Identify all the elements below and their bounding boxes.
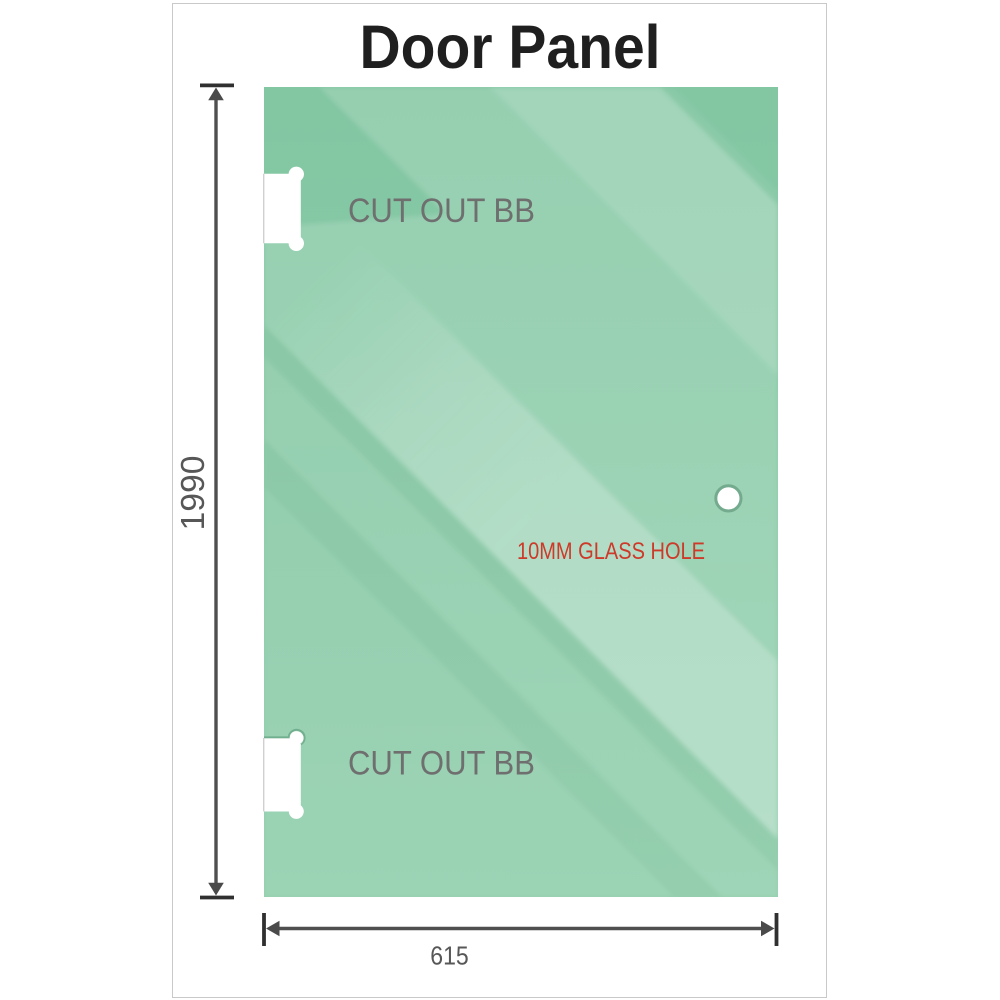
svg-text:615: 615 — [430, 941, 469, 971]
svg-text:CUT OUT BB: CUT OUT BB — [348, 744, 535, 782]
svg-text:10MM GLASS HOLE: 10MM GLASS HOLE — [517, 538, 705, 565]
svg-text:1990: 1990 — [174, 456, 211, 531]
svg-text:Door Panel: Door Panel — [360, 13, 661, 81]
svg-text:CUT OUT BB: CUT OUT BB — [348, 192, 535, 230]
